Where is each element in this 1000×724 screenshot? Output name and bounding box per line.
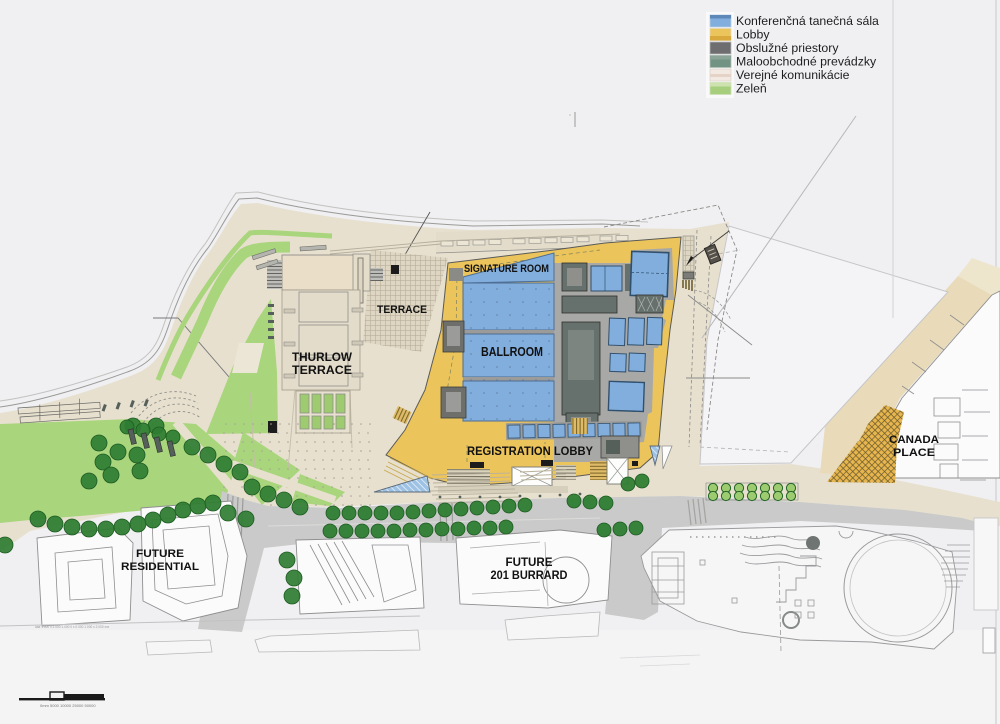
svg-text:0mm 5000 10000 25000 50000: 0mm 5000 10000 25000 50000 [40,703,96,708]
svg-text:Verejné komunikácie: Verejné komunikácie [736,68,850,82]
svg-text:PLACE: PLACE [893,447,935,459]
svg-text:Maloobchodné prevádzky: Maloobchodné prevádzky [736,55,877,69]
svg-text:RESIDENTIAL: RESIDENTIAL [121,561,199,573]
svg-text:Zeleň: Zeleň [736,82,767,96]
svg-text:THURLOW: THURLOW [292,352,352,364]
svg-text:CANADA: CANADA [889,434,939,446]
svg-text:Lobby: Lobby [736,28,770,42]
svg-text:FUTURE: FUTURE [506,557,553,569]
svg-text:BALLROOM: BALLROOM [481,344,543,359]
svg-text:TERRACE: TERRACE [377,304,427,316]
svg-text:REGISTRATION LOBBY: REGISTRATION LOBBY [467,444,593,458]
svg-text:TERRACE: TERRACE [292,365,352,377]
svg-text:201 BURRARD: 201 BURRARD [491,570,568,582]
svg-text:aaa 1.000 x 2.000 1.000 0 x 0.: aaa 1.000 x 2.000 1.000 0 x 0.000 1.000 … [35,625,110,629]
svg-text:FUTURE: FUTURE [136,548,184,560]
svg-text:SIGNATURE ROOM: SIGNATURE ROOM [464,263,549,275]
svg-text:Konferenčná tanečná sála: Konferenčná tanečná sála [736,14,879,28]
svg-text:Obslužné priestory: Obslužné priestory [736,41,839,55]
